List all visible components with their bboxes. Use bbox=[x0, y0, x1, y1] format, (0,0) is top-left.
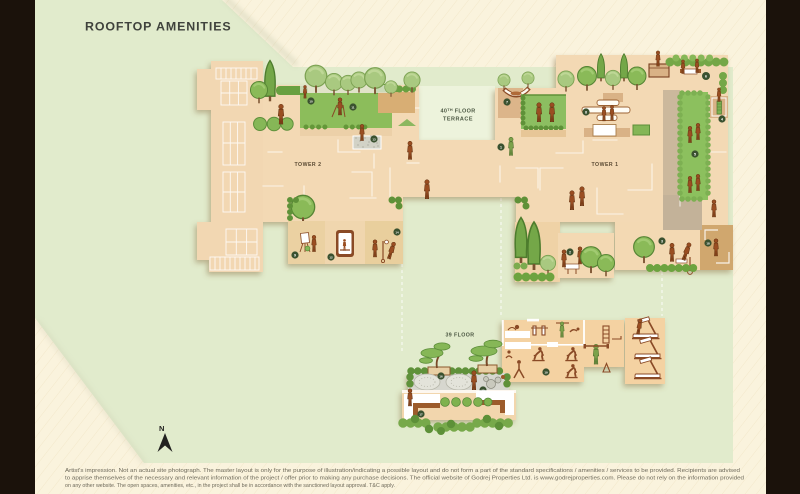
svg-text:TOWER 2: TOWER 2 bbox=[294, 162, 321, 168]
svg-text:17: 17 bbox=[419, 413, 423, 417]
svg-text:2: 2 bbox=[569, 251, 571, 255]
svg-text:14: 14 bbox=[395, 231, 399, 235]
svg-text:8: 8 bbox=[585, 111, 587, 115]
svg-text:6: 6 bbox=[705, 75, 707, 79]
svg-text:5: 5 bbox=[694, 153, 696, 157]
svg-text:10: 10 bbox=[309, 100, 313, 104]
svg-text:18: 18 bbox=[706, 242, 710, 246]
svg-text:7: 7 bbox=[506, 101, 508, 105]
svg-text:39 FLOOR: 39 FLOOR bbox=[445, 333, 474, 339]
svg-text:13: 13 bbox=[372, 138, 376, 142]
svg-text:to apprise themselves of the n: to apprise themselves of the necessary a… bbox=[65, 476, 744, 482]
svg-text:3: 3 bbox=[661, 240, 663, 244]
svg-text:N: N bbox=[159, 424, 164, 433]
svg-text:Artist's impression. Not an ac: Artist's impression. Not an actual site … bbox=[65, 468, 740, 474]
svg-text:9: 9 bbox=[294, 254, 296, 258]
svg-text:19: 19 bbox=[544, 371, 548, 375]
svg-text:1: 1 bbox=[500, 146, 502, 150]
svg-text:on any other website. The open: on any other website. The open spaces, a… bbox=[65, 483, 395, 489]
svg-text:TERRACE: TERRACE bbox=[443, 117, 473, 123]
svg-text:4: 4 bbox=[721, 118, 723, 122]
svg-text:12: 12 bbox=[329, 256, 333, 260]
svg-text:11: 11 bbox=[351, 106, 355, 110]
svg-text:ROOFTOP AMENITIES: ROOFTOP AMENITIES bbox=[85, 20, 232, 34]
svg-text:TOWER 1: TOWER 1 bbox=[591, 162, 618, 168]
svg-text:40TH FLOOR: 40TH FLOOR bbox=[441, 108, 476, 114]
svg-text:16: 16 bbox=[439, 375, 443, 379]
